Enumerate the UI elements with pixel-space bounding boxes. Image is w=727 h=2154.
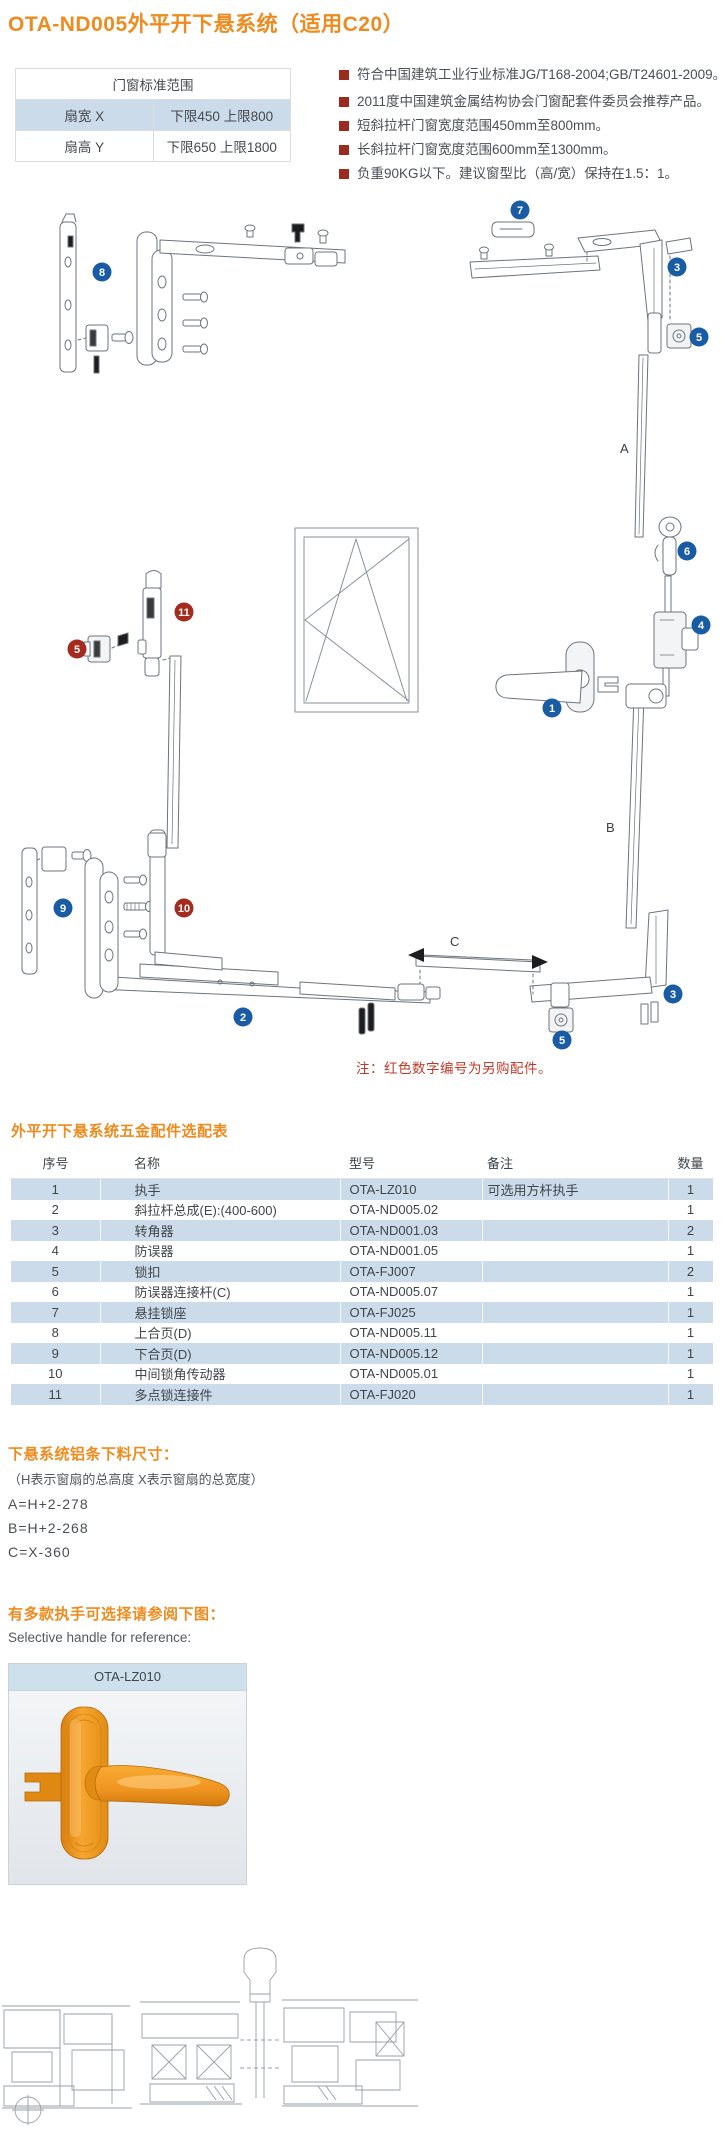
cell-qty: 2 <box>668 1220 713 1241</box>
handle-model-label: OTA-LZ010 <box>9 1664 246 1691</box>
cell-remark <box>482 1364 668 1385</box>
cell-seq: 9 <box>11 1343 100 1364</box>
standards-row-label: 扇宽 X <box>16 100 154 131</box>
cell-seq: 1 <box>11 1179 100 1200</box>
cell-seq: 8 <box>11 1323 100 1344</box>
cell-model: OTA-FJ020 <box>340 1384 482 1405</box>
cell-name: 防误器 <box>100 1241 340 1262</box>
cell-qty: 1 <box>668 1179 713 1200</box>
col-header-qty: 数量 <box>668 1146 713 1179</box>
cell-qty: 1 <box>668 1302 713 1323</box>
table-row: 6防误器连接杆(C)OTA-ND005.071 <box>11 1282 713 1303</box>
cell-seq: 6 <box>11 1282 100 1303</box>
cell-model: OTA-ND005.02 <box>340 1200 482 1221</box>
cell-seq: 2 <box>11 1200 100 1221</box>
table-row: 11多点锁连接件OTA-FJ0201 <box>11 1384 713 1405</box>
cell-remark <box>482 1200 668 1221</box>
col-header-name: 名称 <box>100 1146 340 1179</box>
cell-qty: 1 <box>668 1384 713 1405</box>
badge-3-blue-bottom: 3 <box>670 989 676 1001</box>
diagram-note: 注：红色数字编号为另购配件。 <box>356 1057 552 1077</box>
cell-name: 悬挂锁座 <box>100 1302 340 1323</box>
cell-name: 转角器 <box>100 1220 340 1241</box>
cell-remark <box>482 1220 668 1241</box>
badge-5-blue-bottom: 5 <box>559 1035 565 1047</box>
feature-item: 符合中国建筑工业行业标准JG/T168-2004;GB/T24601-2009。 <box>339 63 726 87</box>
badge-5-blue-top: 5 <box>696 332 702 344</box>
cell-model: OTA-LZ010 <box>340 1179 482 1200</box>
handle-photo <box>9 1691 246 1884</box>
cell-name: 锁扣 <box>100 1261 340 1282</box>
formula-c: C=X-360 <box>8 1544 71 1560</box>
feature-item: 2011度中国建筑金属结构协会门窗配套件委员会推荐产品。 <box>339 90 710 114</box>
cell-name: 下合页(D) <box>100 1343 340 1364</box>
cell-seq: 5 <box>11 1261 100 1282</box>
table-row: 9下合页(D)OTA-ND005.121 <box>11 1343 713 1364</box>
feature-text: 短斜拉杆门窗宽度范围450mm至800mm。 <box>357 118 609 133</box>
badge-7-blue: 7 <box>517 205 523 217</box>
dim-label-a: A <box>620 441 629 456</box>
handle-section-title-en: Selective handle for reference: <box>8 1630 191 1645</box>
cell-qty: 1 <box>668 1241 713 1262</box>
parts-table-header-row: 序号 名称 型号 备注 数量 <box>11 1146 713 1179</box>
formula-a: A=H+2-278 <box>8 1496 89 1512</box>
standards-table-title: 门窗标准范围 <box>16 69 291 100</box>
standards-row-value: 下限450 上限800 <box>153 100 291 131</box>
table-row: 1执手OTA-LZ010可选用方杆执手1 <box>11 1179 713 1200</box>
feature-text: 符合中国建筑工业行业标准JG/T168-2004;GB/T24601-2009。 <box>357 67 726 82</box>
cell-remark <box>482 1282 668 1303</box>
parts-table-title: 外平开下悬系统五金配件选配表 <box>11 1120 228 1141</box>
dim-label-c: C <box>450 934 459 949</box>
cell-remark <box>482 1343 668 1364</box>
cell-qty: 2 <box>668 1261 713 1282</box>
badge-5-red: 5 <box>74 644 80 656</box>
cell-model: OTA-ND005.01 <box>340 1364 482 1385</box>
table-row: 10中间锁角传动器OTA-ND005.011 <box>11 1364 713 1385</box>
bullet-square-icon <box>339 97 349 107</box>
handle-section-title-zh: 有多款执手可选择请参阅下图： <box>8 1603 225 1624</box>
cell-name: 中间锁角传动器 <box>100 1364 340 1385</box>
badge-4-blue: 4 <box>698 620 705 632</box>
badge-1-blue: 1 <box>549 703 555 715</box>
cell-model: OTA-ND001.03 <box>340 1220 482 1241</box>
table-row: 3转角器OTA-ND001.032 <box>11 1220 713 1241</box>
cell-qty: 1 <box>668 1323 713 1344</box>
col-header-seq: 序号 <box>11 1146 100 1179</box>
cell-remark <box>482 1302 668 1323</box>
cutting-size-subtitle: （H表示窗扇的总高度 X表示窗扇的总宽度） <box>8 1469 264 1488</box>
parts-table: 序号 名称 型号 备注 数量 1执手OTA-LZ010可选用方杆执手1 2斜拉杆… <box>11 1146 714 1405</box>
handle-card: OTA-LZ010 <box>8 1663 247 1885</box>
cell-model: OTA-FJ007 <box>340 1261 482 1282</box>
cell-remark: 可选用方杆执手 <box>482 1179 668 1200</box>
cell-name: 执手 <box>100 1179 340 1200</box>
cell-remark <box>482 1241 668 1262</box>
table-row: 2斜拉杆总成(E):(400-600)OTA-ND005.021 <box>11 1200 713 1221</box>
badge-8-blue: 8 <box>99 267 105 279</box>
badge-9-blue: 9 <box>60 903 66 915</box>
profile-cross-section-drawing <box>0 1890 420 2154</box>
feature-item: 短斜拉杆门窗宽度范围450mm至800mm。 <box>339 114 609 138</box>
bullet-square-icon <box>339 121 349 131</box>
cell-seq: 7 <box>11 1302 100 1323</box>
table-row: 7悬挂锁座OTA-FJ0251 <box>11 1302 713 1323</box>
cell-seq: 10 <box>11 1364 100 1385</box>
bullet-square-icon <box>339 70 349 80</box>
cell-qty: 1 <box>668 1364 713 1385</box>
feature-text: 2011度中国建筑金属结构协会门窗配套件委员会推荐产品。 <box>357 94 710 109</box>
cell-name: 上合页(D) <box>100 1323 340 1344</box>
cell-name: 多点锁连接件 <box>100 1384 340 1405</box>
cutting-size-title: 下悬系统铝条下料尺寸： <box>8 1443 179 1464</box>
cell-model: OTA-ND001.05 <box>340 1241 482 1262</box>
badge-10-red: 10 <box>178 903 190 915</box>
cell-model: OTA-ND005.07 <box>340 1282 482 1303</box>
cell-remark <box>482 1384 668 1405</box>
badge-6-blue: 6 <box>684 546 690 558</box>
table-row: 8上合页(D)OTA-ND005.111 <box>11 1323 713 1344</box>
cell-model: OTA-FJ025 <box>340 1302 482 1323</box>
catalog-page: OTA-ND005外平开下悬系统（适用C20） 门窗标准范围 扇宽 X 下限45… <box>0 0 727 2154</box>
badge-3-blue-top: 3 <box>674 262 680 274</box>
exploded-hardware-diagram: A B C 8 7 3 5 6 4 1 9 2 3 5 11 5 10 <box>0 150 727 1065</box>
cell-qty: 1 <box>668 1343 713 1364</box>
cell-name: 斜拉杆总成(E):(400-600) <box>100 1200 340 1221</box>
cell-qty: 1 <box>668 1282 713 1303</box>
cell-model: OTA-ND005.11 <box>340 1323 482 1344</box>
badge-2-blue: 2 <box>240 1012 246 1024</box>
cell-qty: 1 <box>668 1200 713 1221</box>
col-header-model: 型号 <box>340 1146 482 1179</box>
standards-table: 门窗标准范围 扇宽 X 下限450 上限800 扇高 Y 下限650 上限180… <box>15 68 291 162</box>
table-row: 4防误器OTA-ND001.051 <box>11 1241 713 1262</box>
cell-seq: 3 <box>11 1220 100 1241</box>
table-row: 5锁扣OTA-FJ0072 <box>11 1261 713 1282</box>
cell-name: 防误器连接杆(C) <box>100 1282 340 1303</box>
badge-11-red: 11 <box>178 607 190 619</box>
cell-remark <box>482 1261 668 1282</box>
cell-model: OTA-ND005.12 <box>340 1343 482 1364</box>
cell-seq: 11 <box>11 1384 100 1405</box>
cell-seq: 4 <box>11 1241 100 1262</box>
page-title: OTA-ND005外平开下悬系统（适用C20） <box>8 8 404 38</box>
dim-label-b: B <box>606 820 615 835</box>
col-header-remark: 备注 <box>482 1146 668 1179</box>
handle-illustration <box>9 1691 246 1884</box>
cell-remark <box>482 1323 668 1344</box>
formula-b: B=H+2-268 <box>8 1520 89 1536</box>
